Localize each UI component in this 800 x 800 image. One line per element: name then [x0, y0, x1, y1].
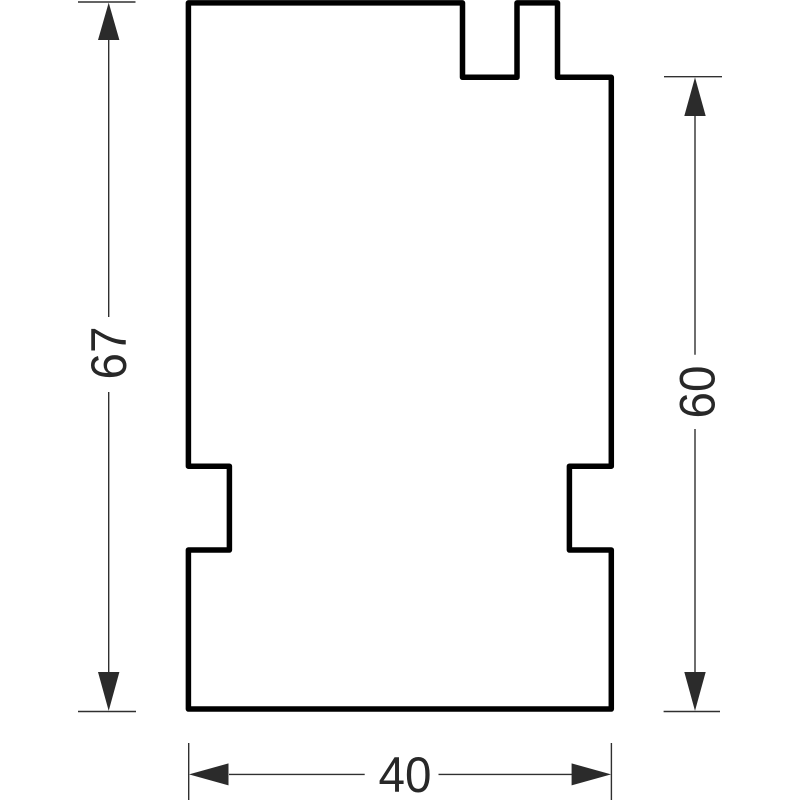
svg-text:40: 40 [379, 747, 432, 800]
svg-text:67: 67 [81, 327, 137, 380]
svg-text:60: 60 [670, 366, 726, 419]
